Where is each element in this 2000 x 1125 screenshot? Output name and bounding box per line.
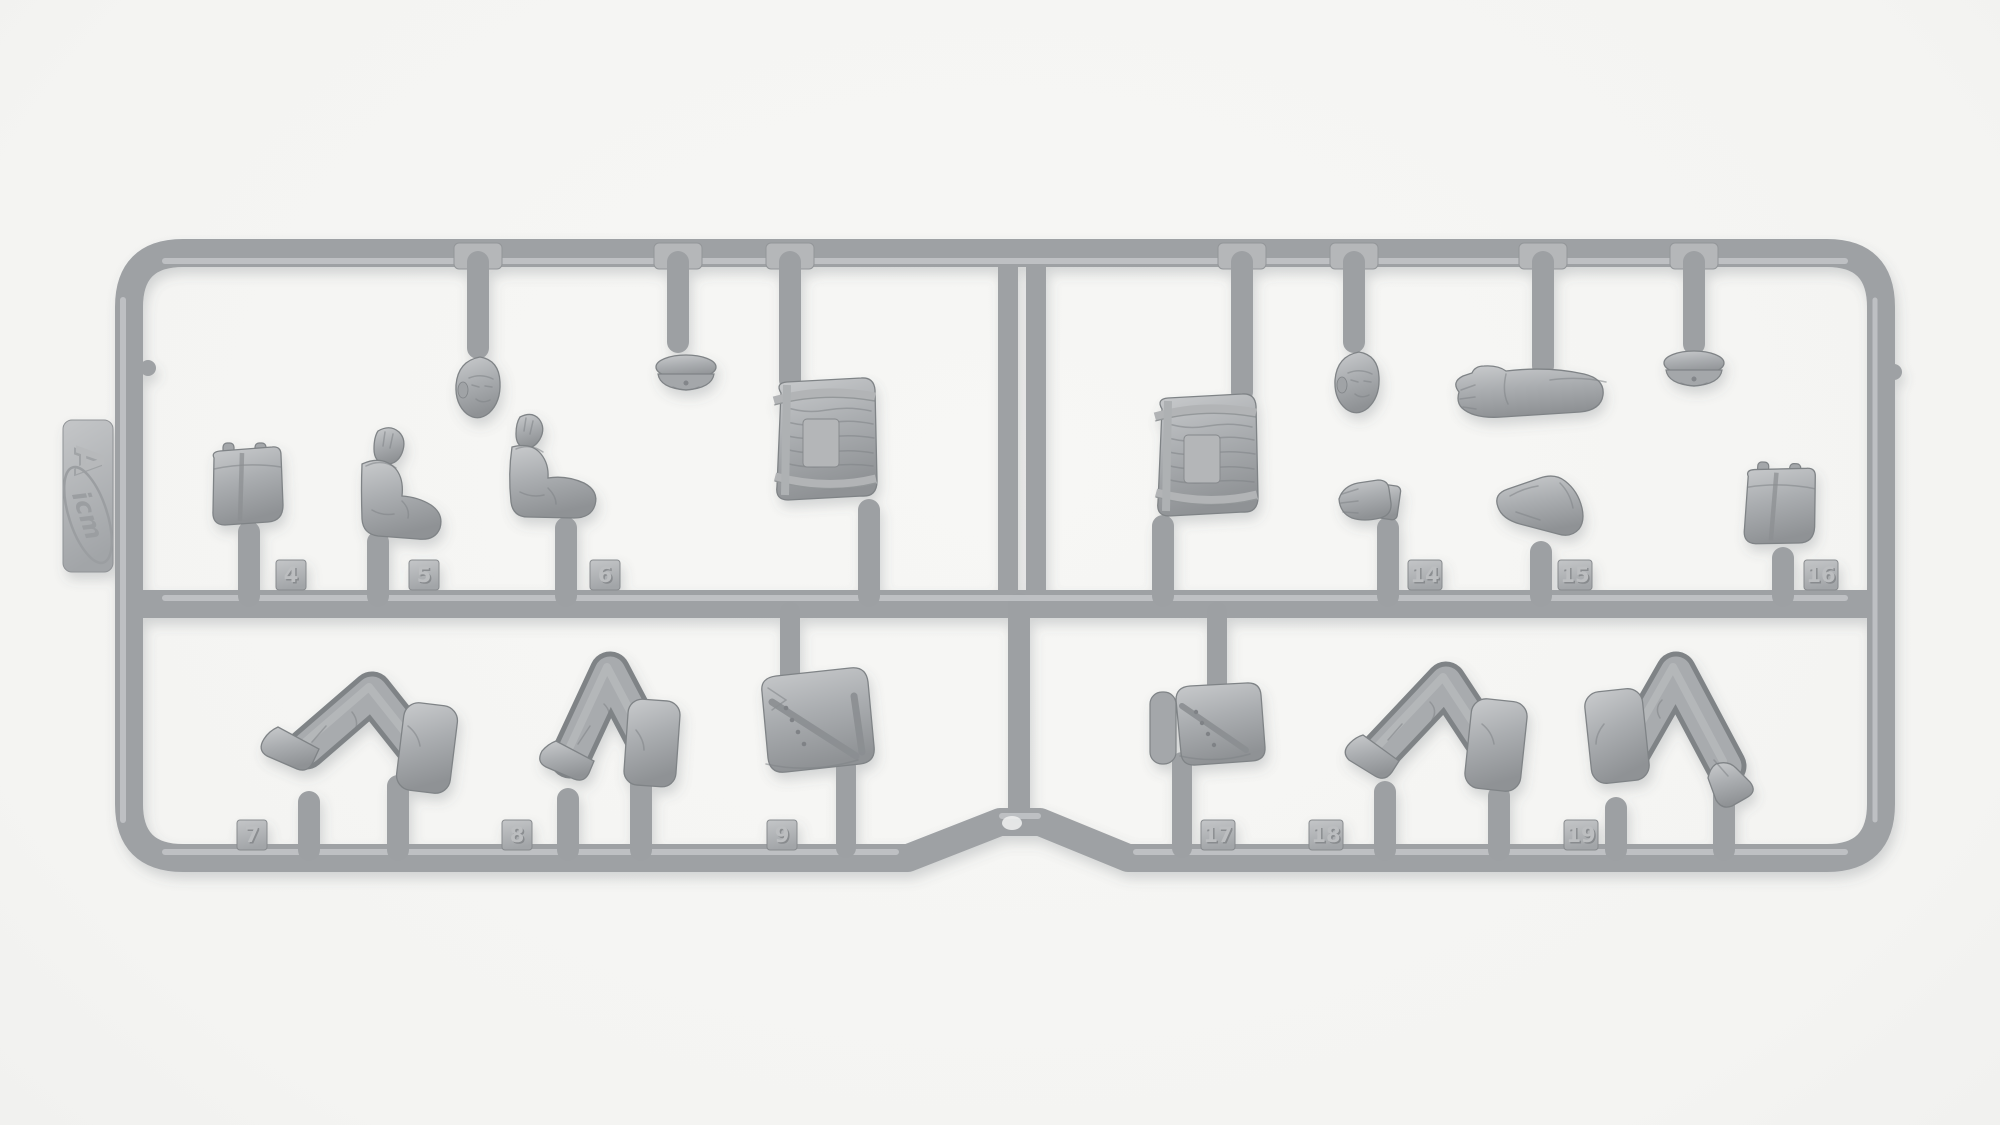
svg-text:18: 18 (1311, 823, 1340, 847)
part-legs-19 (1583, 667, 1753, 807)
sprue: A A icm (54, 243, 1902, 858)
part-number-tag-14: 1414 (1408, 560, 1442, 590)
left-rail-nub (140, 360, 156, 376)
part-head-1 (456, 357, 500, 418)
part-arm-15 (1497, 476, 1583, 535)
svg-text:16: 16 (1806, 563, 1835, 587)
svg-text:6: 6 (598, 563, 613, 587)
gate-pinch-mark (1002, 816, 1022, 830)
part-arm-6 (510, 414, 596, 518)
part-number-tag-17: 1717 (1201, 820, 1235, 850)
right-rail-nub (1886, 364, 1902, 380)
sprue-letter: A (67, 445, 111, 475)
part-hand-14 (1339, 480, 1401, 520)
part-straight-arm (1456, 366, 1606, 417)
part-cap-2 (1664, 351, 1724, 386)
part-number-tag-15: 1515 (1558, 560, 1592, 590)
part-pouch-4 (213, 443, 283, 525)
svg-text:17: 17 (1203, 823, 1232, 847)
part-torso-17 (1150, 683, 1265, 765)
svg-text:4: 4 (284, 563, 299, 587)
part-number-tag-7: 77 (237, 820, 267, 850)
sprue-photo: A A icm (0, 0, 2000, 1125)
svg-text:19: 19 (1566, 823, 1595, 847)
part-legs-7 (261, 687, 459, 795)
svg-text:8: 8 (510, 823, 525, 847)
part-number-tag-16: 1616 (1804, 560, 1838, 590)
part-number-tag-5: 55 (409, 560, 439, 590)
svg-text:9: 9 (775, 823, 790, 847)
part-cap-1 (656, 355, 716, 390)
part-head-2 (1335, 352, 1379, 413)
part-legs-8 (540, 667, 681, 788)
part-legs-18 (1345, 677, 1528, 793)
icm-sprue-tab: A A icm (54, 420, 121, 572)
part-number-tag-6: 66 (590, 560, 620, 590)
part-number-tag-19: 1919 (1564, 820, 1598, 850)
svg-text:14: 14 (1410, 563, 1439, 587)
svg-text:5: 5 (417, 563, 432, 587)
part-torso-9 (762, 668, 874, 772)
part-number-tag-4: 44 (276, 560, 306, 590)
part-basket-2 (1155, 394, 1258, 516)
part-number-tag-8: 88 (502, 820, 532, 850)
part-arm-5 (362, 428, 441, 540)
svg-text:15: 15 (1560, 563, 1589, 587)
svg-text:7: 7 (245, 823, 260, 847)
part-pouch-16 (1744, 461, 1818, 547)
part-basket-1 (774, 378, 877, 500)
part-number-tag-9: 99 (767, 820, 797, 850)
sprue-svg: A A icm (0, 0, 2000, 1125)
part-number-tag-18: 1818 (1309, 820, 1343, 850)
